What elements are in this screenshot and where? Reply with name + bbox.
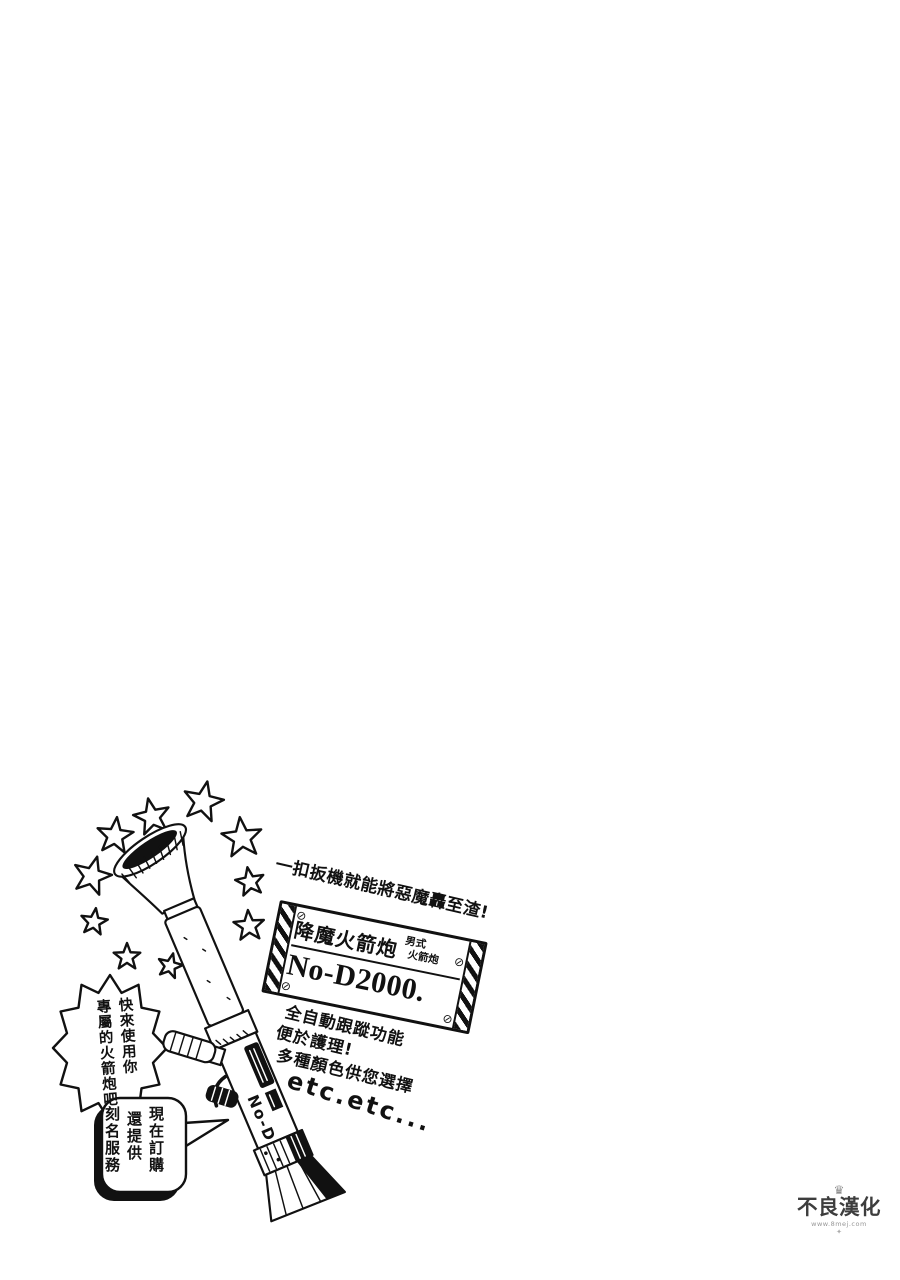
bubble-text-column: 刻名服務 (102, 1106, 123, 1192)
star-icon (79, 906, 109, 935)
manga-page: No-D 一扣扳機就能將惡魔轟 (0, 0, 900, 1280)
star-icon (233, 865, 266, 897)
sign-type-label: 男式 火箭炮 (402, 933, 438, 966)
star-icon (233, 909, 265, 940)
order-bubble-text: 現在訂購 還提供 刻名服務 (110, 1106, 168, 1192)
watermark-name: 不良漢化 (792, 1196, 886, 1220)
spiky-bubble-text: 快來使用你 專屬的火箭炮吧 (88, 996, 144, 1115)
sign-type-top: 男式 (404, 935, 427, 951)
star-icon (180, 777, 227, 822)
scanlation-watermark: ♛ 不良漢化 www.8mej.com ✦ (792, 1184, 886, 1236)
order-bubble-tail (184, 1120, 228, 1146)
star-icon (220, 815, 264, 857)
ornament-icon: ✦ (792, 1228, 886, 1236)
watermark-subtext: www.8mej.com (792, 1220, 886, 1228)
star-icon (69, 852, 115, 897)
star-icon (95, 815, 134, 853)
sign-type-bottom: 火箭炮 (406, 948, 439, 967)
bubble-text-column: 還提供 (124, 1111, 145, 1192)
bubble-text-column: 現在訂購 (146, 1106, 167, 1192)
star-icon (114, 943, 141, 968)
